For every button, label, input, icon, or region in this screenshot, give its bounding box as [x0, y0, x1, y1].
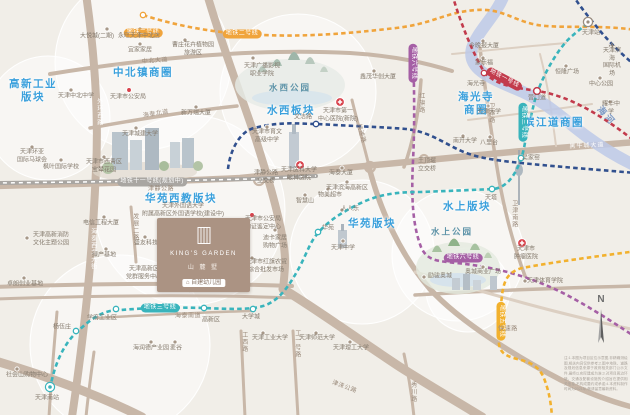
poi-label: 王顶堤 立交桥 [418, 159, 436, 174]
poi-label: 天津中学 [331, 245, 355, 253]
poi-label: 天津滨海高新区 [326, 185, 368, 193]
metro-line-label: 地铁五号线 [497, 302, 506, 341]
road-label: 外环西路 [94, 98, 102, 126]
road-label: 发展二路 [130, 213, 138, 241]
road-label: 海泰北道 [143, 109, 170, 120]
poi-label: 天津市西青区 宝辇花园 [86, 160, 122, 175]
park-label: 水西公园 [269, 83, 311, 94]
metro-line-label: 地铁十一号线(规划中) [117, 178, 187, 187]
station-label: 学府工业区 [87, 315, 117, 323]
road-label: 快速路 [354, 124, 366, 145]
poi-label: 麦谷 [170, 345, 182, 353]
project-logo-block: KING'S GARDEN 山 麓 墅 ⌂ 自建幼儿园 [157, 218, 250, 292]
poi-label: 天津外国语大学 附属高新区外国语学校(建设中) [142, 204, 224, 219]
station-label: 华苑 [322, 225, 334, 233]
map-labels-layer: 高新工业 版块中北镇商圈水西板块海光寺 商圈滨江道商圈华苑西教版块华苑版块水上版… [0, 0, 630, 415]
poi-label: 天津市育文 高级中学 [252, 130, 282, 145]
metro-line-label: 地铁二号线 [223, 30, 262, 39]
district-label: 中北镇商圈 [113, 66, 173, 79]
poi-label: 天津市第一 中心医院(新院) [318, 109, 358, 124]
road-label: 卫津南路 [509, 200, 517, 228]
map-disclaimer: 注:1.本图为项目区位示意图,非精确测绘图,相关内容仅供参考;2.图中地铁、道路… [564, 356, 628, 412]
poi-label: 电信工程大厦 [83, 220, 119, 228]
river-label: 海河 [594, 104, 617, 128]
poi-label: 新万瑞大厦 [181, 110, 211, 118]
poi-label: 卓朗创业基地 [7, 281, 43, 289]
poi-label: 大悦城(二期) [80, 33, 114, 41]
station-label: 天塔 [485, 195, 497, 203]
poi-label: 人人乐 [341, 206, 359, 214]
district-label: 水上版块 [443, 200, 491, 213]
poi-label: 天津滨海 国际机场 [603, 48, 621, 78]
poi-label: 天津市 肿瘤医院 [514, 247, 538, 262]
poi-label: 鑫茂华创大厦 [360, 74, 396, 82]
poi-label: 海润德产业园 [133, 345, 169, 353]
road-label: 红旗路 [416, 93, 424, 114]
poi-label: 智慧山 [296, 198, 314, 206]
station-label: 海光寺 [467, 81, 485, 89]
metro-line-label: 地铁三号线 [519, 103, 528, 142]
metro-line-label: 地铁一号线 [485, 66, 523, 92]
poi-label: 永旺天津中北店 [118, 33, 160, 41]
poi-label: 八里台 [480, 140, 498, 148]
poi-label: 津静公路 立交桥 [254, 171, 278, 186]
poi-label: 盛友科技 [134, 240, 158, 248]
poi-label: 曹庄花卉植物园 旅游区 [172, 43, 214, 58]
road-label: 卫津路 [486, 103, 494, 124]
metro-line-label: 地铁六号线 [444, 254, 483, 263]
district-label: 华苑西教版块 [145, 192, 217, 205]
station-label: 营口道 [528, 95, 546, 103]
park-label: 水上公园 [431, 227, 473, 238]
poi-label: 今晚报大厦 [469, 43, 499, 51]
poi-label: 天津体育学院 [527, 278, 563, 286]
poi-label: 耀华中学 [602, 102, 621, 117]
project-emblem-icon [197, 227, 210, 244]
district-label: 水西板块 [267, 104, 315, 117]
project-name-en: KING'S GARDEN [157, 251, 250, 257]
poi-label: 社会山购物中心 [6, 372, 48, 380]
kindergarten-label: 自建幼儿园 [191, 280, 221, 286]
poi-label: 奥城商业广场 [465, 269, 501, 277]
compass-n-label: N [592, 294, 610, 305]
poi-label: 天津大学 [477, 109, 501, 117]
compass-needle-icon [593, 305, 609, 349]
metro-line-label: 地铁三号线 [141, 304, 180, 313]
station-label: 高新区 [202, 317, 220, 325]
poi-label: 枫叶国际学校 [43, 164, 79, 172]
road-label: 秀川路 [408, 382, 416, 403]
compass: N [592, 294, 610, 354]
poi-label: 天津城建大学 [122, 131, 158, 139]
road-label: 工一号路 [292, 330, 300, 358]
road-label: 黑牛城大道 [569, 142, 604, 151]
poi-label: 天津环亚 国际马球会 [17, 150, 47, 165]
poi-label: 天津师范大学 [299, 335, 335, 343]
road-label: 海泰西北大街 [88, 228, 96, 270]
poi-label: 中心公园 [589, 81, 613, 89]
poi-label: 天津工业大学 [252, 335, 288, 343]
poi-label: 迪卡家居 购物广场 [263, 236, 287, 251]
district-label: 高新工业 版块 [9, 78, 57, 104]
poi-label: 物美超市 [318, 192, 342, 200]
metro-line-label: 地铁二号线 [124, 29, 163, 38]
disclaimer-text: 注:1.本图为项目区位示意图,非精确测绘图,相关内容仅供参考;2.图中地铁、道路… [564, 356, 628, 392]
station-label: 大学城 [242, 314, 260, 322]
kindergarten-badge: ⌂ 自建幼儿园 [182, 279, 225, 287]
road-label: 海泰南道 [175, 313, 201, 321]
station-label: 天津站 [582, 30, 600, 38]
metro-line-label: 地铁六号线 [409, 44, 418, 83]
poi-label: 天津医科大学 眼科医院 [281, 168, 317, 183]
road-label: 快速路 [498, 326, 518, 334]
poi-label: 天津市红旗农贸 综合批发市场 [245, 260, 287, 275]
location-map: ✈ 高新工业 版块中北镇商圈水西板块海光寺 商圈滨江道商圈华苑西教版块华苑版块水… [0, 0, 630, 415]
poi-label: 天津广播影视 职业学院 [244, 64, 280, 79]
road-label: 津静公路 [148, 186, 174, 194]
poi-label: 天津高新消防 文化主题公园 [33, 233, 69, 248]
road-label: 工西路 [239, 332, 247, 353]
poi-label: 家乐福 [475, 60, 493, 68]
poi-label: 天津中北中学 [58, 93, 94, 101]
station-label: 杨伍庄 [53, 324, 71, 332]
poi-label: 海泰大厦 [329, 170, 353, 178]
road-label: 津涞公路 [330, 380, 357, 396]
poi-label: 恒隆广场 [555, 69, 579, 77]
poi-label: 天津理工大学 [333, 345, 369, 353]
station-label: 天津南站 [35, 395, 59, 403]
poi-label: 天津市公安局 物证鉴定中心 [245, 217, 281, 232]
district-label: 滨江道商圈 [524, 116, 584, 129]
poi-label: 励骏奥城 [428, 273, 452, 281]
poi-label: 绿产基地 [92, 252, 116, 260]
project-name-cn: 山 麓 墅 [157, 262, 250, 271]
district-label: 海光寺 商圈 [458, 91, 494, 117]
station-label: 吴家窑 [522, 155, 540, 163]
poi-label: 天津市公安局 [110, 94, 146, 102]
district-label: 华苑版块 [348, 217, 396, 230]
road-label: 中北大道 [142, 57, 168, 66]
station-label: 文洁路 [294, 114, 312, 122]
poi-label: 宜家家居 [128, 47, 152, 55]
poi-label: 南开大学 [453, 138, 477, 146]
